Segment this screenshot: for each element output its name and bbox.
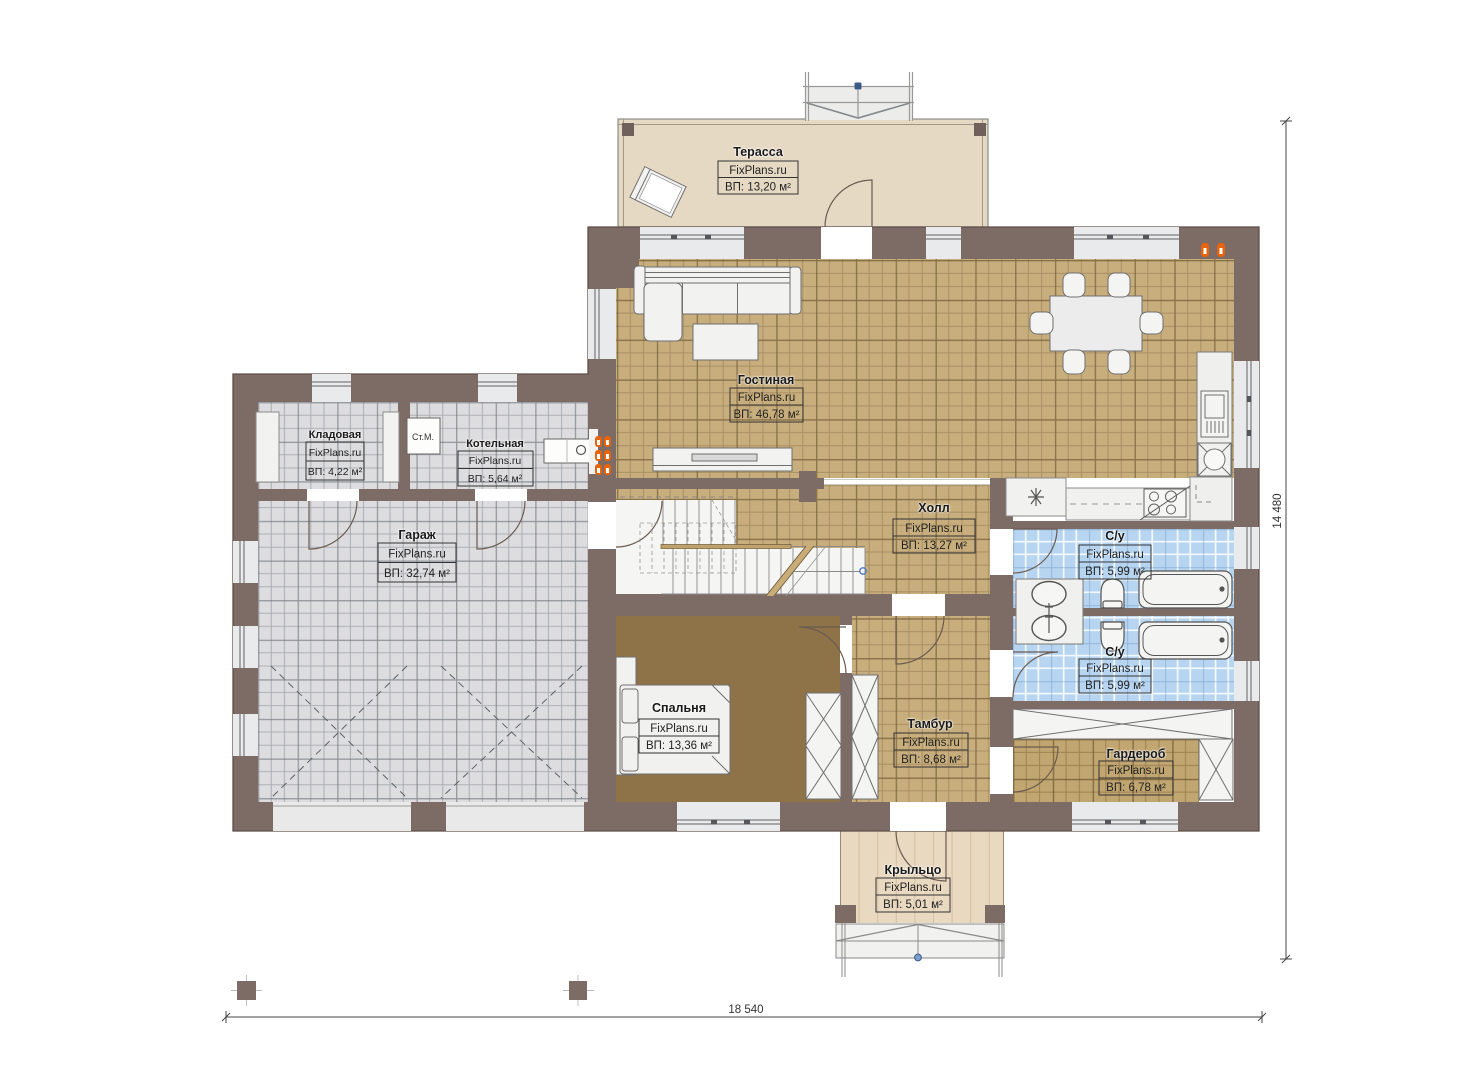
- svg-text:ВП: 4,22 м²: ВП: 4,22 м²: [308, 466, 363, 478]
- svg-text:FixPlans.ru: FixPlans.ru: [1086, 663, 1144, 675]
- svg-text:Гараж: Гараж: [398, 528, 435, 542]
- svg-text:FixPlans.ru: FixPlans.ru: [309, 447, 362, 459]
- svg-text:ВП: 32,74 м²: ВП: 32,74 м²: [384, 568, 450, 580]
- svg-text:FixPlans.ru: FixPlans.ru: [1107, 765, 1165, 777]
- svg-text:FixPlans.ru: FixPlans.ru: [905, 523, 963, 535]
- svg-text:С/у: С/у: [1105, 645, 1125, 659]
- svg-text:FixPlans.ru: FixPlans.ru: [1086, 549, 1144, 561]
- svg-text:FixPlans.ru: FixPlans.ru: [902, 737, 960, 749]
- svg-text:Тамбур: Тамбур: [907, 717, 953, 731]
- svg-text:FixPlans.ru: FixPlans.ru: [650, 723, 708, 735]
- svg-text:ВП: 13,27 м²: ВП: 13,27 м²: [901, 540, 967, 552]
- svg-text:Кладовая: Кладовая: [309, 429, 362, 441]
- svg-text:FixPlans.ru: FixPlans.ru: [388, 549, 446, 561]
- svg-text:FixPlans.ru: FixPlans.ru: [729, 165, 787, 177]
- svg-text:18 540: 18 540: [728, 1004, 763, 1016]
- svg-text:Гардероб: Гардероб: [1106, 747, 1165, 761]
- svg-text:Спальня: Спальня: [652, 701, 706, 715]
- svg-text:FixPlans.ru: FixPlans.ru: [738, 392, 796, 404]
- svg-text:Крыльцо: Крыльцо: [885, 863, 942, 877]
- svg-text:Котельная: Котельная: [466, 438, 524, 450]
- svg-text:FixPlans.ru: FixPlans.ru: [469, 455, 522, 467]
- svg-text:ВП: 5,01 м²: ВП: 5,01 м²: [883, 899, 943, 911]
- svg-text:Холл: Холл: [918, 501, 949, 515]
- svg-text:FixPlans.ru: FixPlans.ru: [884, 882, 942, 894]
- svg-text:ВП: 6,78 м²: ВП: 6,78 м²: [1106, 782, 1166, 794]
- svg-text:Гостиная: Гостиная: [738, 373, 795, 387]
- svg-text:ВП: 13,20 м²: ВП: 13,20 м²: [725, 182, 791, 194]
- svg-text:ВП: 5,99 м²: ВП: 5,99 м²: [1085, 566, 1145, 578]
- svg-text:С/у: С/у: [1105, 529, 1125, 543]
- svg-text:ВП: 46,78 м²: ВП: 46,78 м²: [733, 409, 799, 421]
- svg-text:ВП: 5,99 м²: ВП: 5,99 м²: [1085, 680, 1145, 692]
- svg-text:ВП: 8,68 м²: ВП: 8,68 м²: [901, 754, 961, 766]
- svg-text:Терасса: Терасса: [733, 145, 784, 159]
- svg-text:ВП: 5,64 м²: ВП: 5,64 м²: [468, 473, 523, 485]
- svg-text:ВП: 13,36 м²: ВП: 13,36 м²: [646, 740, 712, 752]
- svg-text:Ст.М.: Ст.М.: [412, 432, 434, 442]
- svg-text:14 480: 14 480: [1272, 493, 1284, 528]
